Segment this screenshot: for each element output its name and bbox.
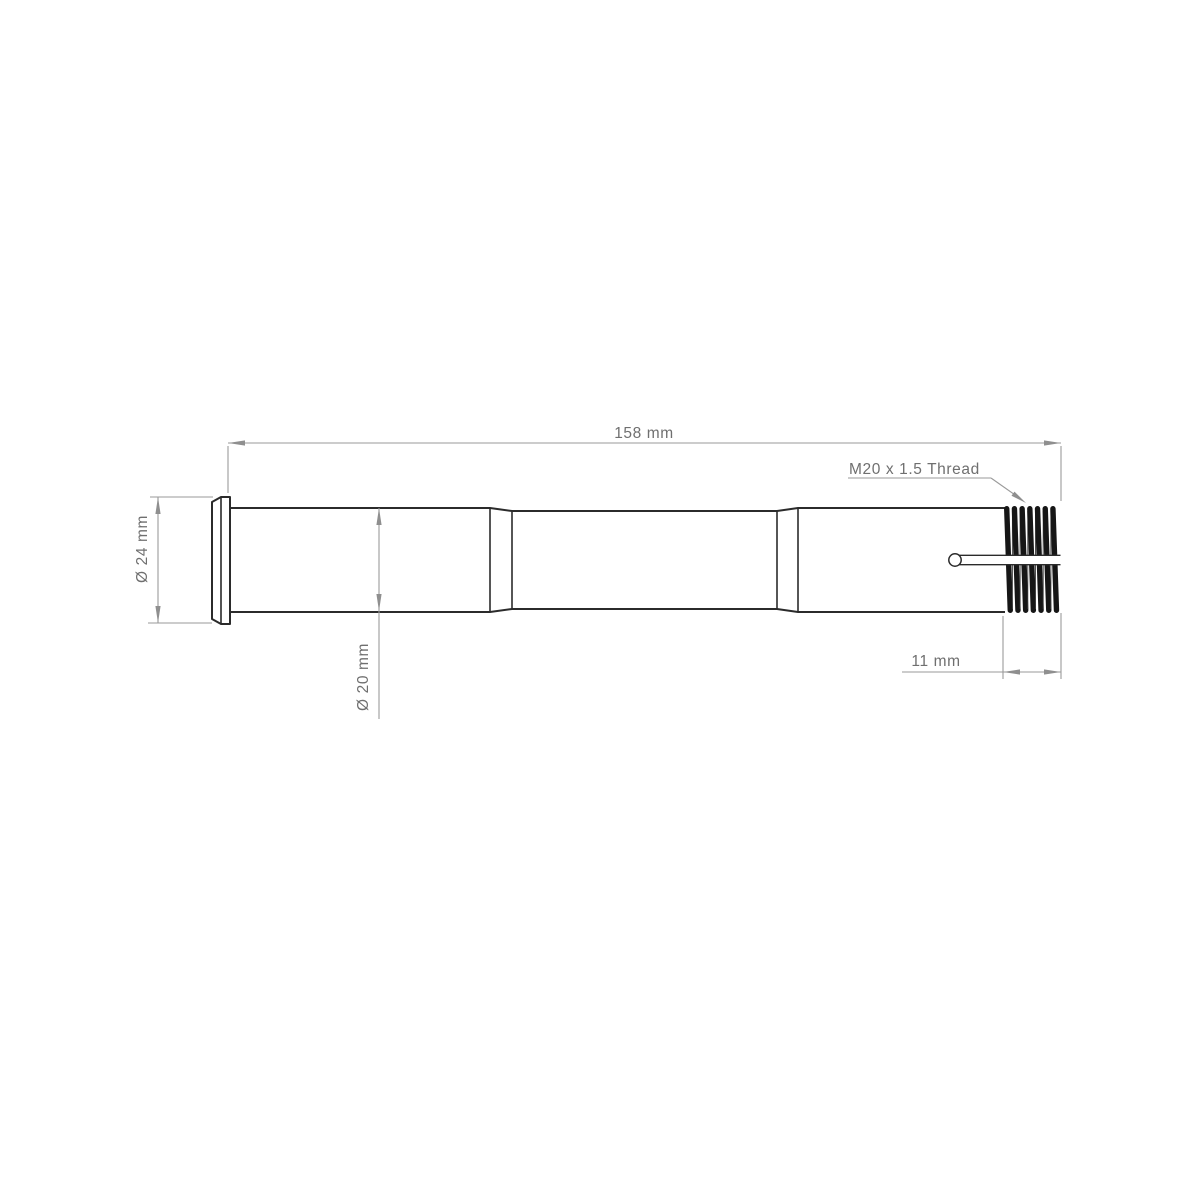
axle-body [212, 497, 1061, 624]
overall-length-label: 158 mm [614, 425, 674, 442]
arrow-up-icon [376, 508, 381, 525]
arrow-down-icon [155, 606, 160, 623]
flange-head [212, 497, 230, 624]
keyway-slot-end-hole [949, 554, 961, 566]
thread-callout: M20 x 1.5 Thread [848, 461, 1026, 503]
head-diameter-label: Ø 24 mm [134, 515, 151, 583]
arrow-left-icon [228, 440, 245, 445]
dimension-head-diameter: Ø 24 mm [134, 497, 213, 623]
keyway-slot [949, 554, 1061, 566]
dimension-thread-length: 11 mm [902, 613, 1061, 679]
shaft-diameter-label: Ø 20 mm [355, 643, 372, 711]
shaft-outline [230, 508, 1005, 612]
thread-spec-label: M20 x 1.5 Thread [849, 461, 980, 478]
leader-arrow-icon [1012, 492, 1027, 503]
arrow-up-icon [155, 497, 160, 514]
dimension-shaft-diameter: Ø 20 mm [355, 508, 382, 719]
arrow-right-icon [1044, 440, 1061, 445]
drawing-canvas: 158 mm Ø 24 mm Ø 20 mm 11 mm [0, 0, 1200, 1200]
thread-length-label: 11 mm [911, 653, 960, 670]
thru-axle-technical-drawing: 158 mm Ø 24 mm Ø 20 mm 11 mm [0, 0, 1200, 1200]
arrow-left-icon [1003, 669, 1020, 674]
arrow-right-icon [1044, 669, 1061, 674]
arrow-down-icon [376, 594, 381, 611]
